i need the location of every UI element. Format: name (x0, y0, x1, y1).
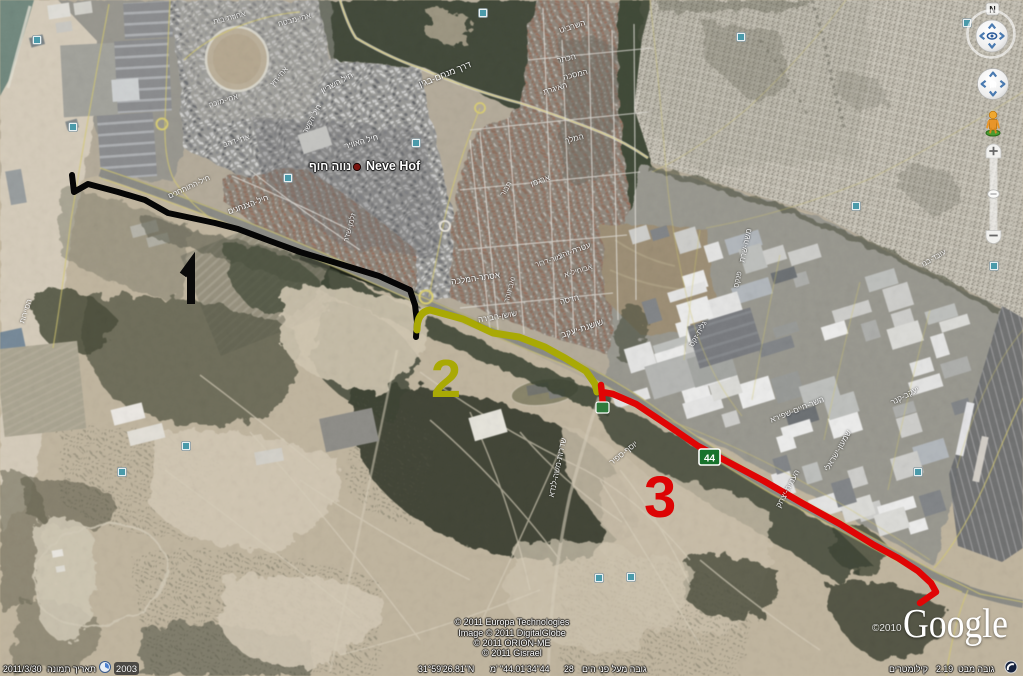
svg-text:אחי-מבטח: אחי-מבטח (277, 11, 312, 28)
svg-text:אחוזת-בית: אחוזת-בית (212, 9, 246, 26)
svg-text:שדרות-משה-לנדא: שדרות-משה-לנדא (547, 437, 568, 498)
svg-text:הדסה: הדסה (559, 293, 580, 306)
svg-text:עובד-בנו: עובד-בנו (920, 247, 948, 268)
svg-text:44: 44 (704, 454, 716, 465)
svg-text:נווה חוף: נווה חוף (309, 161, 351, 173)
svg-text:קילומטרים: קילומטרים (889, 664, 928, 674)
svg-text:"44.01'34"44: "44.01'34"44 (500, 664, 550, 674)
svg-text:יוסף-ספיר: יוסף-ספיר (608, 439, 640, 467)
svg-text:שושן-הבירה: שושן-הבירה (477, 309, 518, 325)
svg-text:פנקס: פנקס (731, 270, 743, 289)
svg-text:28: 28 (564, 664, 574, 674)
svg-text:ואביזוהר: ואביזוהר (502, 275, 517, 303)
svg-text:Image © 2011 DigitalGlobe: Image © 2011 DigitalGlobe (458, 628, 566, 638)
svg-text:31°59'26.81"N: 31°59'26.81"N (418, 664, 474, 674)
svg-text:שושנת-יעקב: שושנת-יעקב (560, 317, 605, 340)
svg-text:האיגרת: האיגרת (542, 80, 569, 96)
svg-text:חיל הקשר: חיל הקשר (300, 103, 323, 135)
svg-text:משה-שרת: משה-שרת (738, 228, 754, 264)
svg-text:גובה מעל פני הים: גובה מעל פני הים (582, 664, 647, 674)
svg-text:גלית-זקס: גלית-זקס (687, 319, 709, 348)
svg-text:המסכה: המסכה (562, 67, 588, 82)
svg-text:Google: Google (903, 600, 1008, 646)
svg-text:מ': מ' (490, 664, 498, 674)
svg-text:חיל-הצנחנים: חיל-הצנחנים (227, 193, 270, 216)
svg-text:השרביט: השרביט (558, 18, 586, 35)
svg-text:© 2011 ORION-ME: © 2011 ORION-ME (474, 638, 551, 648)
svg-text:אחי-חץ: אחי-חץ (268, 65, 290, 88)
svg-text:תאריך תמונה: תאריך תמונה (47, 664, 96, 674)
svg-text:הכתר: הכתר (556, 52, 577, 65)
svg-text:© 2011 Europa Technologies: © 2011 Europa Technologies (455, 617, 570, 627)
svg-text:חיל-התותחנים: חיל-התותחנים (167, 173, 212, 200)
svg-text:2003: 2003 (116, 664, 137, 675)
svg-text:אסתר-המלכה: אסתר-המלכה (450, 270, 501, 287)
svg-text:דרך מנחם-בגין: דרך מנחם-בגין (417, 59, 472, 89)
svg-text:2011/3/30: 2011/3/30 (3, 664, 42, 674)
svg-text:המלך: המלך (564, 132, 585, 146)
svg-text:שמעון-ישראלי: שמעון-ישראלי (822, 428, 853, 473)
svg-text:חיל השריון: חיל השריון (319, 71, 354, 95)
svg-text:זלמן-שז'ר: זלמן-שז'ר (341, 212, 357, 243)
svg-text:Neve Hof: Neve Hof (366, 159, 421, 173)
svg-text:2.19: 2.19 (936, 664, 953, 674)
svg-text:אבוחיל-א: אבוחיל-א (563, 262, 594, 280)
svg-text:מור-דרור: מור-דרור (534, 252, 563, 269)
svg-text:©2010: ©2010 (872, 623, 902, 634)
svg-text:© 2011 Gisrael: © 2011 Gisrael (482, 648, 542, 658)
svg-text:יעקב-קנר: יעקב-קנר (889, 385, 921, 408)
svg-text:תבור: תבור (498, 180, 514, 198)
svg-text:אחי-דהב: אחי-דהב (222, 132, 251, 149)
svg-text:חיל האוויר: חיל האוויר (344, 133, 380, 151)
svg-text:2: 2 (431, 349, 461, 409)
svg-text:גובה מבט: גובה מבט (958, 664, 995, 674)
svg-text:3: 3 (644, 465, 676, 530)
svg-text:השר-חיים-שפירא: השר-חיים-שפירא (769, 395, 825, 425)
svg-text:אחי-מזכה: אחי-מזכה (207, 92, 239, 110)
svg-text:הסיירות: הסיירות (18, 298, 34, 325)
svg-text:ארגמן: ארגמן (529, 173, 551, 188)
